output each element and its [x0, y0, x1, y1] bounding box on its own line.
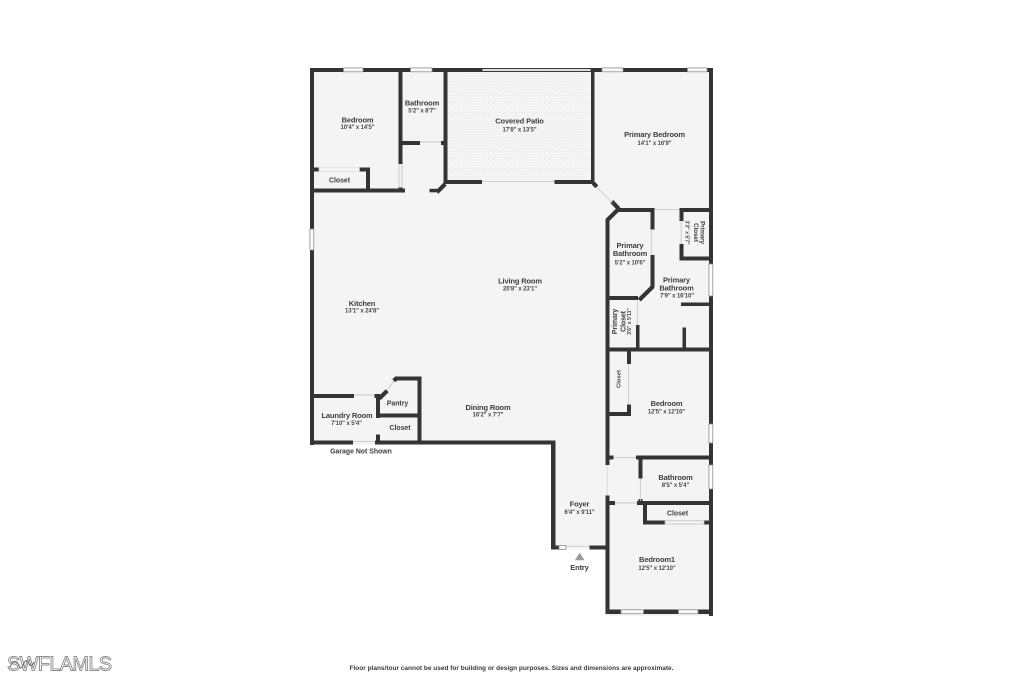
- svg-text:Kitchen: Kitchen: [349, 299, 376, 308]
- svg-text:Bedroom: Bedroom: [342, 115, 374, 124]
- svg-text:14'1" x 16'9": 14'1" x 16'9": [638, 141, 672, 147]
- svg-text:PrimaryCloset3'3" x 5'7": PrimaryCloset3'3" x 5'7": [684, 220, 706, 245]
- svg-text:10'4" x 14'5": 10'4" x 14'5": [341, 125, 375, 131]
- svg-text:12'5" x 12'10": 12'5" x 12'10": [648, 409, 685, 415]
- svg-text:7'9" x 16'10": 7'9" x 16'10": [660, 293, 694, 299]
- svg-text:Living Room: Living Room: [498, 277, 542, 286]
- svg-text:13'1" x 24'8": 13'1" x 24'8": [345, 309, 379, 315]
- svg-text:Primary Bedroom: Primary Bedroom: [624, 130, 685, 139]
- svg-text:PrimaryBathroom: PrimaryBathroom: [659, 276, 694, 293]
- svg-text:Foyer: Foyer: [570, 499, 590, 508]
- svg-text:Closet: Closet: [329, 178, 351, 185]
- svg-text:Pantry: Pantry: [387, 401, 409, 408]
- svg-text:5'2" x 10'6": 5'2" x 10'6": [615, 260, 646, 266]
- svg-text:5'2" x 8'7": 5'2" x 8'7": [408, 108, 436, 114]
- svg-text:Bedroom1: Bedroom1: [639, 555, 675, 564]
- svg-text:12'5" x 12'10": 12'5" x 12'10": [638, 566, 675, 572]
- svg-text:7'10" x 5'4": 7'10" x 5'4": [331, 421, 362, 427]
- svg-text:SWFLAMLS: SWFLAMLS: [7, 654, 112, 676]
- svg-text:Garage Not Shown: Garage Not Shown: [330, 449, 392, 456]
- svg-text:Bathroom: Bathroom: [405, 99, 440, 108]
- svg-text:Covered Patio: Covered Patio: [495, 117, 544, 126]
- svg-text:Entry: Entry: [570, 563, 589, 572]
- svg-text:Floor plans/tour cannot be use: Floor plans/tour cannot be used for buil…: [350, 665, 674, 672]
- svg-text:Closet: Closet: [617, 370, 623, 388]
- svg-text:Bedroom: Bedroom: [651, 399, 683, 408]
- svg-text:16'2" x 7'7": 16'2" x 7'7": [473, 413, 504, 419]
- svg-text:6'4" x 9'11": 6'4" x 9'11": [564, 510, 595, 516]
- svg-text:PrimaryBathroom: PrimaryBathroom: [613, 241, 648, 258]
- svg-text:Bathroom: Bathroom: [658, 473, 693, 482]
- svg-text:20'8" x 23'1": 20'8" x 23'1": [503, 286, 537, 292]
- svg-text:PrimaryCloset3'6" x 5'11": PrimaryCloset3'6" x 5'11": [612, 308, 633, 335]
- svg-text:8'5" x 5'4": 8'5" x 5'4": [662, 483, 690, 489]
- svg-text:Laundry Room: Laundry Room: [321, 411, 373, 420]
- svg-text:17'8" x 13'5": 17'8" x 13'5": [503, 127, 537, 133]
- svg-text:Closet: Closet: [389, 425, 411, 432]
- svg-text:Closet: Closet: [667, 511, 689, 518]
- svg-text:Dining Room: Dining Room: [465, 403, 510, 412]
